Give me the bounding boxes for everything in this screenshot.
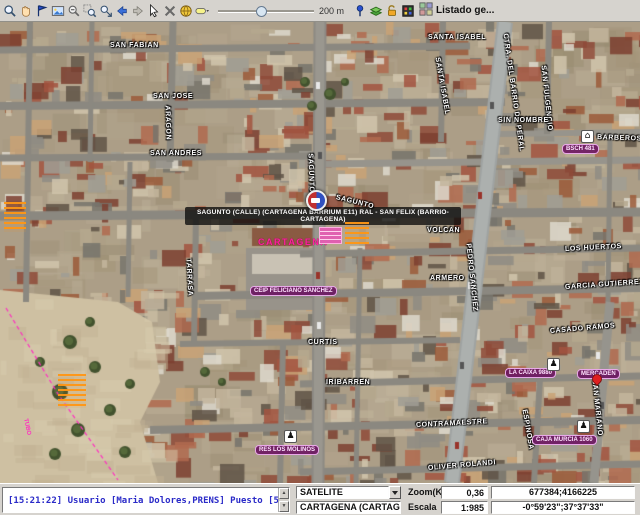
utm-coords-field: 677384;4166225 [491, 486, 635, 499]
legend-icon[interactable] [400, 2, 416, 20]
status-bar: [15:21:22] Usuario [Maria Dolores,PRENS]… [0, 483, 640, 515]
status-row-1: SATELITE Zoom(Km) 677384;4166225 [296, 486, 637, 499]
map-canvas[interactable] [0, 22, 640, 483]
log-scrollbar[interactable]: ▲ ▼ [278, 488, 289, 512]
listado-button[interactable]: Listado ge... [419, 2, 494, 19]
delete-icon[interactable] [162, 2, 178, 20]
pan-icon[interactable] [18, 2, 34, 20]
pointer-icon[interactable] [146, 2, 162, 20]
map-viewport[interactable]: SAGUNTO (CALLE) (CARTAGENA BARRIUM E11) … [0, 22, 640, 483]
globe-icon[interactable] [178, 2, 194, 20]
listado-label: Listado ge... [436, 5, 494, 16]
geo-coords-field: -0°59'23";37°37'33" [491, 501, 635, 514]
zoom-km-label: Zoom(Km) [401, 486, 441, 499]
toolbar-icons-right [352, 2, 416, 20]
back-arrow-icon[interactable] [114, 2, 130, 20]
status-row-2: CARTAGENA (CARTAGENA) Escala -0°59'23";3… [296, 501, 637, 514]
forward-arrow-icon[interactable] [130, 2, 146, 20]
chevron-down-icon [392, 491, 398, 495]
layer-select-arrow[interactable] [389, 486, 401, 499]
zoom-out-icon[interactable] [66, 2, 82, 20]
pushpin-icon[interactable] [352, 2, 368, 20]
scroll-up-button[interactable]: ▲ [279, 488, 289, 499]
flag-icon[interactable] [34, 2, 50, 20]
log-box: [15:21:22] Usuario [Maria Dolores,PRENS]… [2, 487, 290, 513]
status-panel: SATELITE Zoom(Km) 677384;4166225 CARTAGE… [296, 486, 637, 514]
scale-value-field[interactable] [441, 501, 488, 514]
scale-slider[interactable] [218, 3, 314, 19]
toolbar: 200 m Listado ge... [0, 0, 640, 22]
escala-label: Escala [401, 501, 441, 514]
unlock-icon[interactable] [384, 2, 400, 20]
scale-label: 200 m [319, 6, 344, 16]
zoom-select-icon[interactable] [98, 2, 114, 20]
scroll-down-button[interactable]: ▼ [279, 501, 289, 512]
image-icon[interactable] [50, 2, 66, 20]
toolbar-icons-left [2, 2, 210, 20]
gis-app-window: 200 m Listado ge... SAGUNTO (CALLE) (CAR… [0, 0, 640, 515]
layer-select[interactable]: SATELITE [296, 486, 389, 499]
scale-slider-thumb[interactable] [256, 6, 267, 17]
zoom-window-icon[interactable] [82, 2, 98, 20]
zoom-in-icon[interactable] [2, 2, 18, 20]
zoom-value-field[interactable] [441, 486, 488, 499]
municipality-field: CARTAGENA (CARTAGENA) [296, 501, 401, 514]
listado-icon [419, 2, 433, 19]
marker-style-icon[interactable] [194, 2, 210, 20]
layers-icon[interactable] [368, 2, 384, 20]
log-message: [15:21:22] Usuario [Maria Dolores,PRENS]… [8, 496, 290, 506]
